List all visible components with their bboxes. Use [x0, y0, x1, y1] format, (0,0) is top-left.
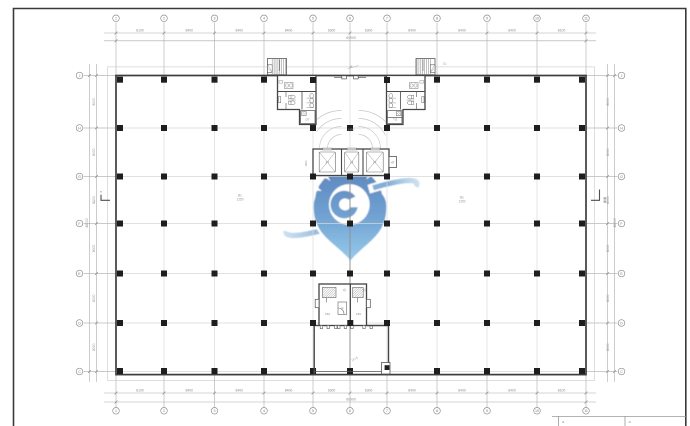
svg-text:8100: 8100 — [136, 388, 144, 392]
svg-text:8400: 8400 — [508, 28, 516, 32]
svg-text:8000: 8000 — [92, 148, 96, 156]
svg-text:6: 6 — [349, 17, 351, 21]
svg-text:10: 10 — [535, 17, 539, 21]
svg-text:5: 5 — [312, 409, 314, 413]
svg-text:1T: 1T — [373, 161, 377, 165]
svg-text:8400: 8400 — [185, 388, 193, 392]
svg-text:6300: 6300 — [365, 388, 373, 392]
svg-text:6300: 6300 — [328, 388, 336, 392]
svg-text:10: 10 — [535, 409, 539, 413]
svg-text:5: 5 — [312, 17, 314, 21]
svg-text:1T: 1T — [350, 161, 354, 165]
svg-text:J: J — [621, 74, 623, 78]
svg-text:1250: 1250 — [236, 198, 243, 202]
svg-text:6300: 6300 — [328, 28, 336, 32]
svg-text:1800: 1800 — [304, 160, 308, 167]
svg-text:3: 3 — [214, 409, 216, 413]
svg-text:8000: 8000 — [92, 98, 96, 106]
svg-text:D: D — [78, 321, 81, 325]
svg-text:8400: 8400 — [285, 388, 293, 392]
svg-text:150: 150 — [325, 312, 330, 316]
svg-text:8100: 8100 — [136, 28, 144, 32]
svg-text:60900: 60900 — [346, 397, 356, 401]
svg-text:8400: 8400 — [408, 388, 416, 392]
svg-text:8000: 8000 — [606, 98, 610, 106]
svg-text:160: 160 — [356, 312, 361, 316]
svg-text:8400: 8400 — [408, 28, 416, 32]
svg-text:8000: 8000 — [606, 196, 610, 204]
svg-text:C: C — [78, 370, 81, 374]
svg-text:48000: 48000 — [613, 218, 617, 228]
svg-text:8400: 8400 — [285, 28, 293, 32]
svg-text:8000: 8000 — [606, 148, 610, 156]
svg-text:6: 6 — [349, 409, 351, 413]
svg-text:8400: 8400 — [458, 28, 466, 32]
svg-text:9: 9 — [486, 409, 488, 413]
svg-text:1: 1 — [115, 409, 117, 413]
svg-text:8400: 8400 — [185, 28, 193, 32]
svg-text:8000: 8000 — [606, 343, 610, 351]
svg-text:1250: 1250 — [458, 200, 465, 204]
svg-text:8000: 8000 — [606, 245, 610, 253]
svg-text:2: 2 — [163, 17, 165, 21]
svg-text:D: D — [620, 321, 623, 325]
svg-text:8: 8 — [436, 409, 438, 413]
svg-text:8100: 8100 — [558, 388, 566, 392]
svg-text:8000: 8000 — [606, 294, 610, 302]
svg-text:8000: 8000 — [92, 343, 96, 351]
svg-text:1450: 1450 — [348, 128, 355, 132]
svg-text:4: 4 — [263, 409, 265, 413]
svg-text:H: H — [620, 126, 623, 130]
svg-text:DT: DT — [393, 118, 397, 122]
svg-text:7: 7 — [386, 17, 388, 21]
svg-text:2: 2 — [163, 409, 165, 413]
svg-text:11: 11 — [584, 17, 588, 21]
svg-text:[1]: [1] — [443, 62, 447, 66]
svg-text:8000: 8000 — [92, 245, 96, 253]
svg-text:C: C — [620, 370, 623, 374]
svg-text:8000: 8000 — [92, 294, 96, 302]
svg-text:7: 7 — [386, 409, 388, 413]
svg-text:1: 1 — [115, 17, 117, 21]
svg-text:60900: 60900 — [346, 36, 356, 40]
svg-text:8: 8 — [436, 17, 438, 21]
svg-text:AT: AT — [391, 161, 395, 165]
svg-text:1T: 1T — [326, 161, 330, 165]
svg-text:11: 11 — [584, 409, 588, 413]
svg-text:4: 4 — [263, 17, 265, 21]
svg-text:8100: 8100 — [558, 28, 566, 32]
svg-text:H: H — [78, 126, 81, 130]
svg-text:8400: 8400 — [235, 388, 243, 392]
svg-text:9: 9 — [486, 17, 488, 21]
svg-text:3: 3 — [214, 17, 216, 21]
svg-text:8400: 8400 — [458, 388, 466, 392]
svg-text:8400: 8400 — [508, 388, 516, 392]
svg-text:J: J — [79, 74, 81, 78]
svg-text:G: G — [78, 175, 81, 179]
svg-text:DT: DT — [306, 118, 310, 122]
svg-text:G: G — [620, 175, 623, 179]
svg-text:8400: 8400 — [235, 28, 243, 32]
svg-text:48000: 48000 — [85, 218, 89, 228]
svg-text:6300: 6300 — [365, 28, 373, 32]
